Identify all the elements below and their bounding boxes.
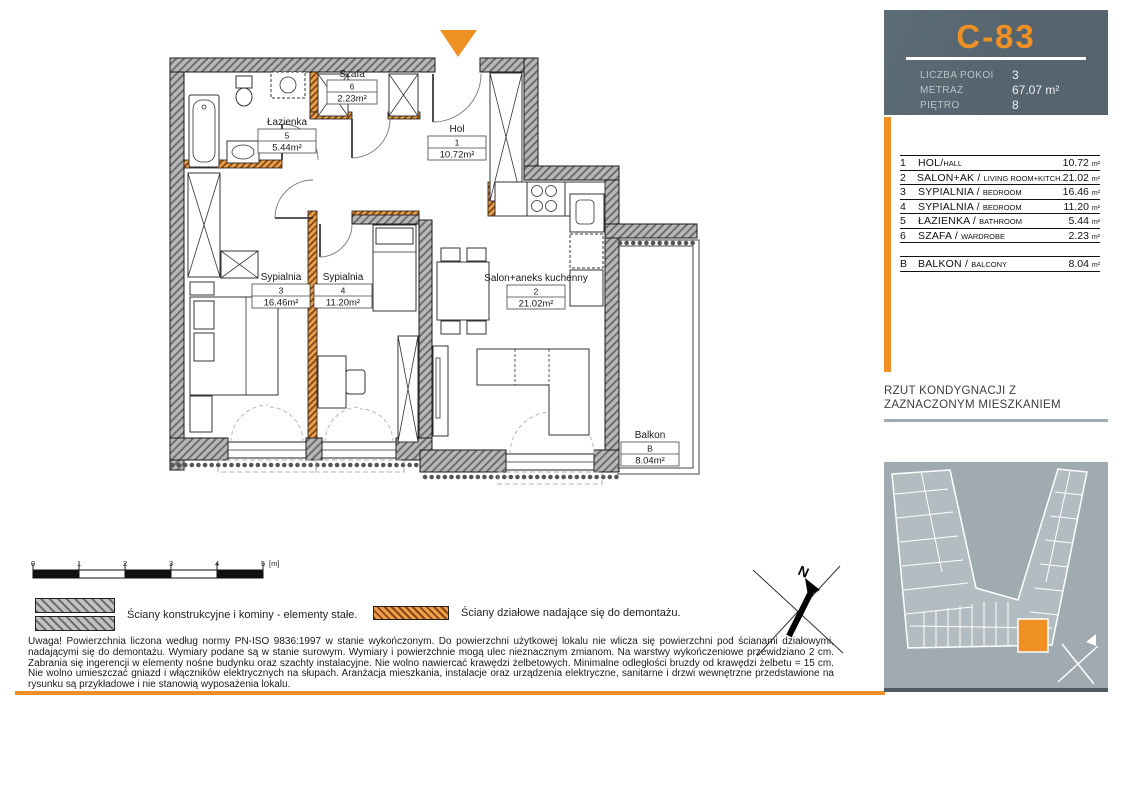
room-label-balkon: Balkon B 8.04m²	[621, 430, 679, 467]
svg-text:3: 3	[279, 286, 284, 296]
room-label-sypialnia-3: Sypialnia 3 16.46m²	[252, 272, 310, 309]
scale-bar: 0 1 2 3 4 5 [m]	[28, 556, 318, 586]
svg-text:Łazienka: Łazienka	[267, 117, 307, 128]
unit-header-card: C-83 LICZBA POKOI 3 METRAŻ 67.07 m² PIĘT…	[884, 10, 1108, 115]
apartment-floor-plan: Łazienka 5 5.44m² Szafa 6 2.23m² Hol 1 1…	[0, 0, 860, 560]
legend-partition-text: Ściany działowe nadające się do demontaż…	[461, 607, 681, 619]
svg-text:Szafa: Szafa	[339, 69, 365, 80]
map-bottom-border	[884, 688, 1108, 692]
structural-wall-swatch	[35, 598, 115, 631]
unit-field-rooms: LICZBA POKOI 3	[920, 68, 1108, 83]
svg-text:6: 6	[350, 82, 355, 92]
rooms-table: 1 HOL/HALL 10.72 m² 2 SALON+AK / LIVING …	[900, 155, 1100, 272]
bottom-accent-rule	[15, 691, 885, 695]
legend-partition: Ściany działowe nadające się do demontaż…	[373, 606, 681, 620]
svg-text:Balkon: Balkon	[635, 430, 666, 441]
unit-field-floor: PIĘTRO 8	[920, 98, 1108, 113]
svg-text:5.44m²: 5.44m²	[272, 143, 302, 154]
legend-structural-text: Ściany konstrukcyjne i kominy - elementy…	[127, 609, 357, 621]
legend-structural: Ściany konstrukcyjne i kominy - elementy…	[35, 598, 357, 631]
table-row: 5 ŁAZIENKA / BATHROOM 5.44 m²	[900, 213, 1100, 228]
svg-text:[m]: [m]	[269, 559, 279, 568]
unit-underline	[906, 57, 1086, 60]
room-label-hol: Hol 1 10.72m²	[428, 124, 486, 161]
svg-text:1: 1	[455, 138, 460, 148]
svg-text:16.46m²: 16.46m²	[264, 298, 299, 309]
room-label-sypialnia-4: Sypialnia 4 11.20m²	[314, 272, 372, 309]
floor-plan-sheet: Łazienka 5 5.44m² Szafa 6 2.23m² Hol 1 1…	[0, 0, 1123, 793]
svg-text:10.72m²: 10.72m²	[440, 150, 475, 161]
accent-side-bar	[884, 117, 891, 372]
table-row: 3 SYPIALNIA / BEDROOM 16.46 m²	[900, 184, 1100, 199]
partition-wall-swatch	[373, 606, 449, 620]
highlighted-unit	[1018, 619, 1048, 652]
table-row: 2 SALON+AK / LIVING ROOM+KITCH. 21.02 m²	[900, 170, 1100, 185]
table-row-balcony: B BALKON / BALCONY 8.04 m²	[900, 256, 1100, 272]
svg-text:5: 5	[285, 131, 290, 141]
svg-text:11.20m²: 11.20m²	[326, 298, 360, 309]
room-label-lazienka: Łazienka 5 5.44m²	[258, 117, 316, 154]
caption-rule	[884, 419, 1108, 422]
svg-text:Hol: Hol	[449, 124, 464, 135]
disclaimer-text: Uwaga! Powierzchnia liczona według normy…	[28, 637, 834, 691]
floor-plan-caption: RZUT KONDYGNACJI Z ZAZNACZONYM MIESZKANI…	[884, 384, 1074, 412]
svg-text:Salon+aneks kuchenny: Salon+aneks kuchenny	[484, 273, 588, 284]
svg-text:Sypialnia: Sypialnia	[323, 272, 364, 283]
unit-code: C-83	[884, 18, 1108, 56]
table-row: 6 SZAFA / WARDROBE 2.23 m²	[900, 228, 1100, 244]
unit-field-area: METRAŻ 67.07 m²	[920, 83, 1108, 98]
svg-text:B: B	[647, 444, 653, 454]
svg-text:4: 4	[341, 286, 346, 296]
svg-text:2.23m²: 2.23m²	[337, 94, 367, 105]
table-row: 1 HOL/HALL 10.72 m²	[900, 155, 1100, 170]
entrance-marker-icon	[440, 30, 477, 57]
svg-text:N: N	[796, 562, 812, 581]
svg-text:8.04m²: 8.04m²	[635, 456, 665, 467]
svg-text:21.02m²: 21.02m²	[519, 299, 554, 310]
table-row: 4 SYPIALNIA / BEDROOM 11.20 m²	[900, 199, 1100, 214]
scale-bar-ticks: 0 1 2 3 4 5 [m]	[31, 559, 279, 568]
svg-text:Sypialnia: Sypialnia	[261, 272, 302, 283]
building-key-plan	[884, 462, 1108, 692]
svg-text:2: 2	[534, 287, 539, 297]
